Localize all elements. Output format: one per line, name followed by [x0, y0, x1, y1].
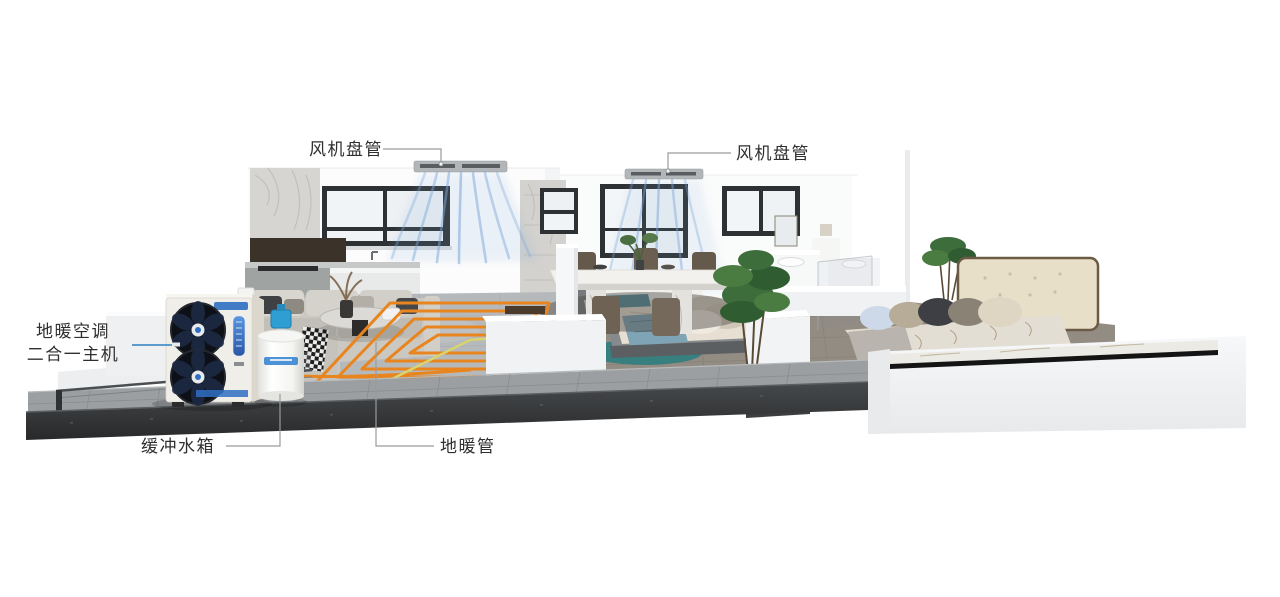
label-main-unit: 地暖空调 二合一主机: [14, 320, 132, 366]
window-small: [540, 188, 578, 234]
fan-coil-unit-right: [625, 169, 703, 179]
label-buffer-tank-text: 缓冲水箱: [141, 437, 215, 456]
callout-line-fan-left: [383, 149, 441, 162]
right-front-wall: [868, 336, 1246, 434]
label-fan-coil-left: 风机盘管: [309, 139, 383, 161]
label-floor-pipe-text: 地暖管: [440, 437, 496, 456]
label-main-unit-line2: 二合一主机: [14, 343, 132, 366]
label-buffer-tank: 缓冲水箱: [141, 436, 215, 458]
brand-strip-top: [214, 302, 248, 310]
label-floor-pipe: 地暖管: [440, 436, 496, 458]
label-fan-coil-left-text: 风机盘管: [309, 140, 383, 159]
tank-valve: [271, 310, 291, 328]
label-fan-coil-right: 风机盘管: [736, 143, 810, 165]
callout-line-fan-right: [668, 153, 731, 169]
label-fan-coil-right-text: 风机盘管: [736, 144, 810, 163]
house-cutaway-illustration: [0, 0, 1280, 597]
wood-bench: [505, 306, 545, 314]
marketing-illustration-page: 风机盘管 风机盘管 地暖空调 二合一主机 缓冲水箱 地暖管: [0, 0, 1280, 597]
label-main-unit-line1: 地暖空调: [14, 320, 132, 343]
brand-strip-bottom: [196, 390, 248, 397]
fan-coil-unit-left: [414, 161, 507, 172]
heat-pump-main-unit: [152, 294, 272, 411]
